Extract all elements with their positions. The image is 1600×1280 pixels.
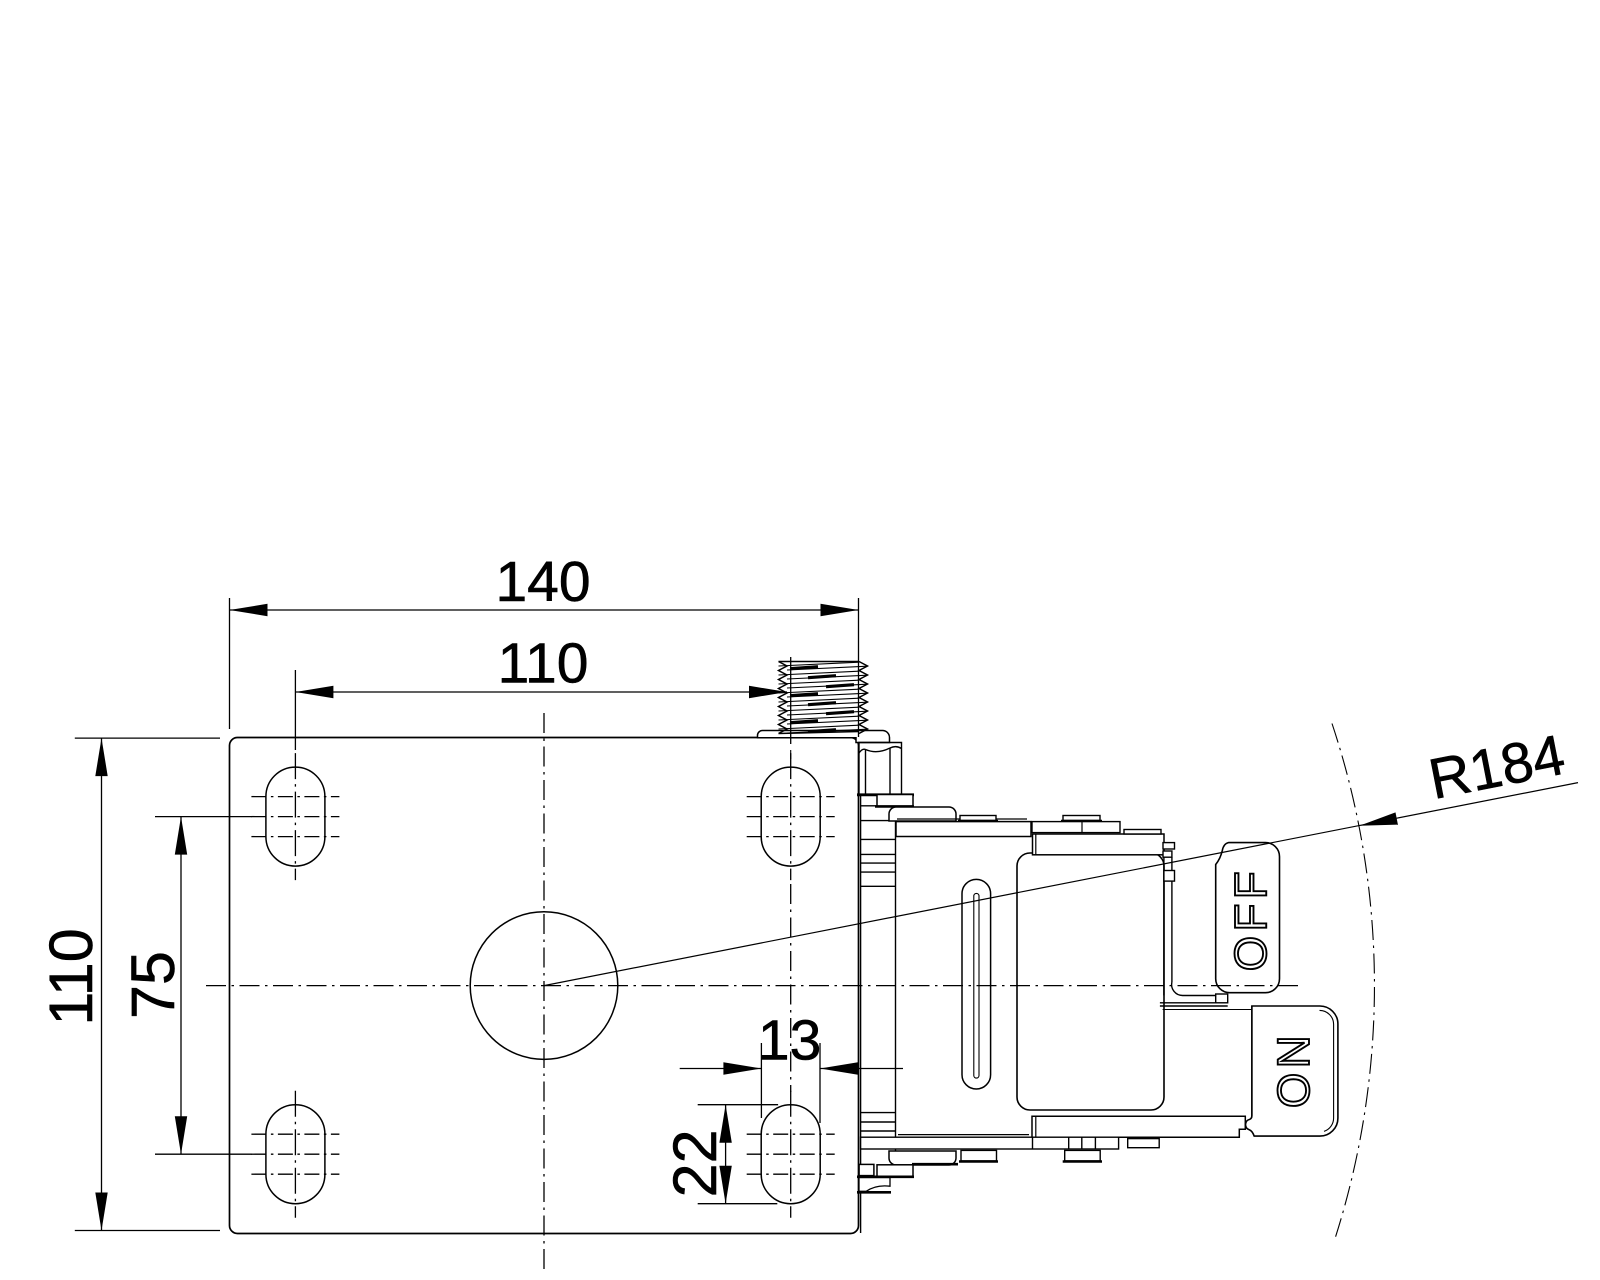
svg-text:R184: R184 [1424,723,1570,812]
svg-text:OFF: OFF [1225,867,1276,971]
svg-text:22: 22 [661,1129,729,1197]
svg-text:ON: ON [1268,1031,1319,1108]
svg-text:13: 13 [758,1009,821,1073]
svg-text:110: 110 [498,632,589,696]
svg-text:140: 140 [495,550,590,614]
svg-text:75: 75 [119,951,187,1019]
svg-text:110: 110 [37,928,105,1025]
